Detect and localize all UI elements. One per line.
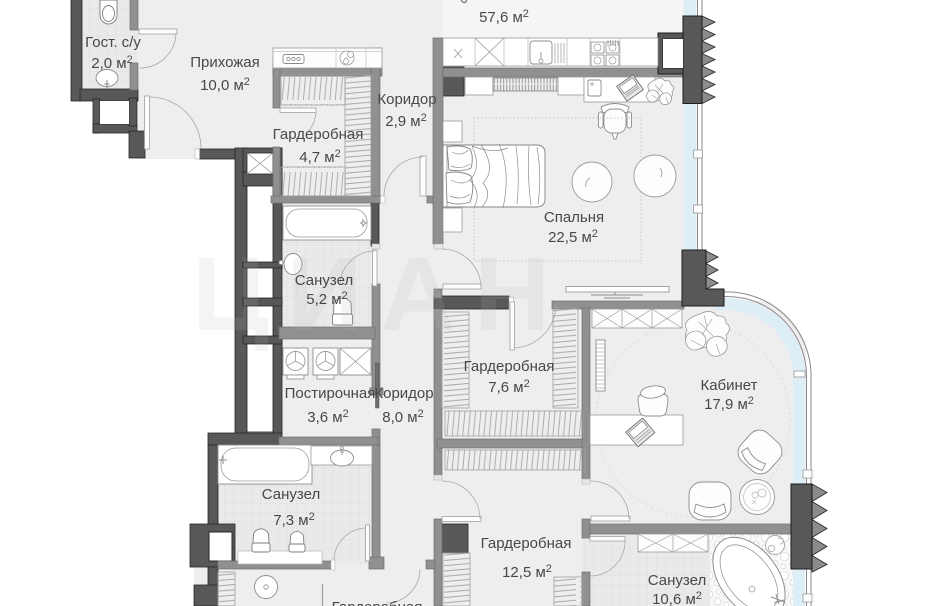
svg-text:3,6 м2: 3,6 м2 [307, 408, 348, 426]
svg-text:Гост. с/у: Гост. с/у [85, 34, 141, 51]
svg-text:5,2 м2: 5,2 м2 [306, 290, 347, 308]
svg-text:7,3 м2: 7,3 м2 [273, 511, 314, 529]
svg-text:10,6 м2: 10,6 м2 [652, 590, 702, 606]
svg-text:Постирочная: Постирочная [285, 385, 376, 402]
svg-text:17,9 м2: 17,9 м2 [704, 395, 754, 413]
svg-text:Санузел: Санузел [295, 272, 353, 289]
svg-text:8,0 м2: 8,0 м2 [382, 408, 423, 426]
svg-text:Прихожая: Прихожая [190, 54, 260, 71]
svg-text:Гардеробная: Гардеробная [481, 535, 572, 552]
svg-text:12,5 м2: 12,5 м2 [502, 563, 552, 581]
svg-text:Гардеробная: Гардеробная [464, 358, 555, 375]
svg-text:7,6 м2: 7,6 м2 [488, 378, 529, 396]
svg-text:Коридор: Коридор [374, 385, 433, 402]
svg-text:Гардеробная: Гардеробная [273, 126, 364, 143]
svg-text:2,9 м2: 2,9 м2 [385, 112, 426, 130]
svg-text:ЦИАН: ЦИАН [192, 236, 568, 353]
svg-text:4,7 м2: 4,7 м2 [299, 148, 340, 166]
svg-text:Санузел: Санузел [648, 572, 706, 589]
svg-text:22,5 м2: 22,5 м2 [548, 228, 598, 246]
svg-text:Кабинет: Кабинет [700, 377, 757, 394]
svg-text:Коридор: Коридор [377, 91, 436, 108]
svg-text:Санузел: Санузел [262, 486, 320, 503]
svg-text:57,6 м2: 57,6 м2 [479, 8, 529, 26]
svg-text:10,0 м2: 10,0 м2 [200, 76, 250, 94]
svg-text:Гардеробная: Гардеробная [332, 599, 423, 606]
svg-text:Спальня: Спальня [544, 209, 604, 226]
svg-text:2,0 м2: 2,0 м2 [91, 54, 132, 72]
